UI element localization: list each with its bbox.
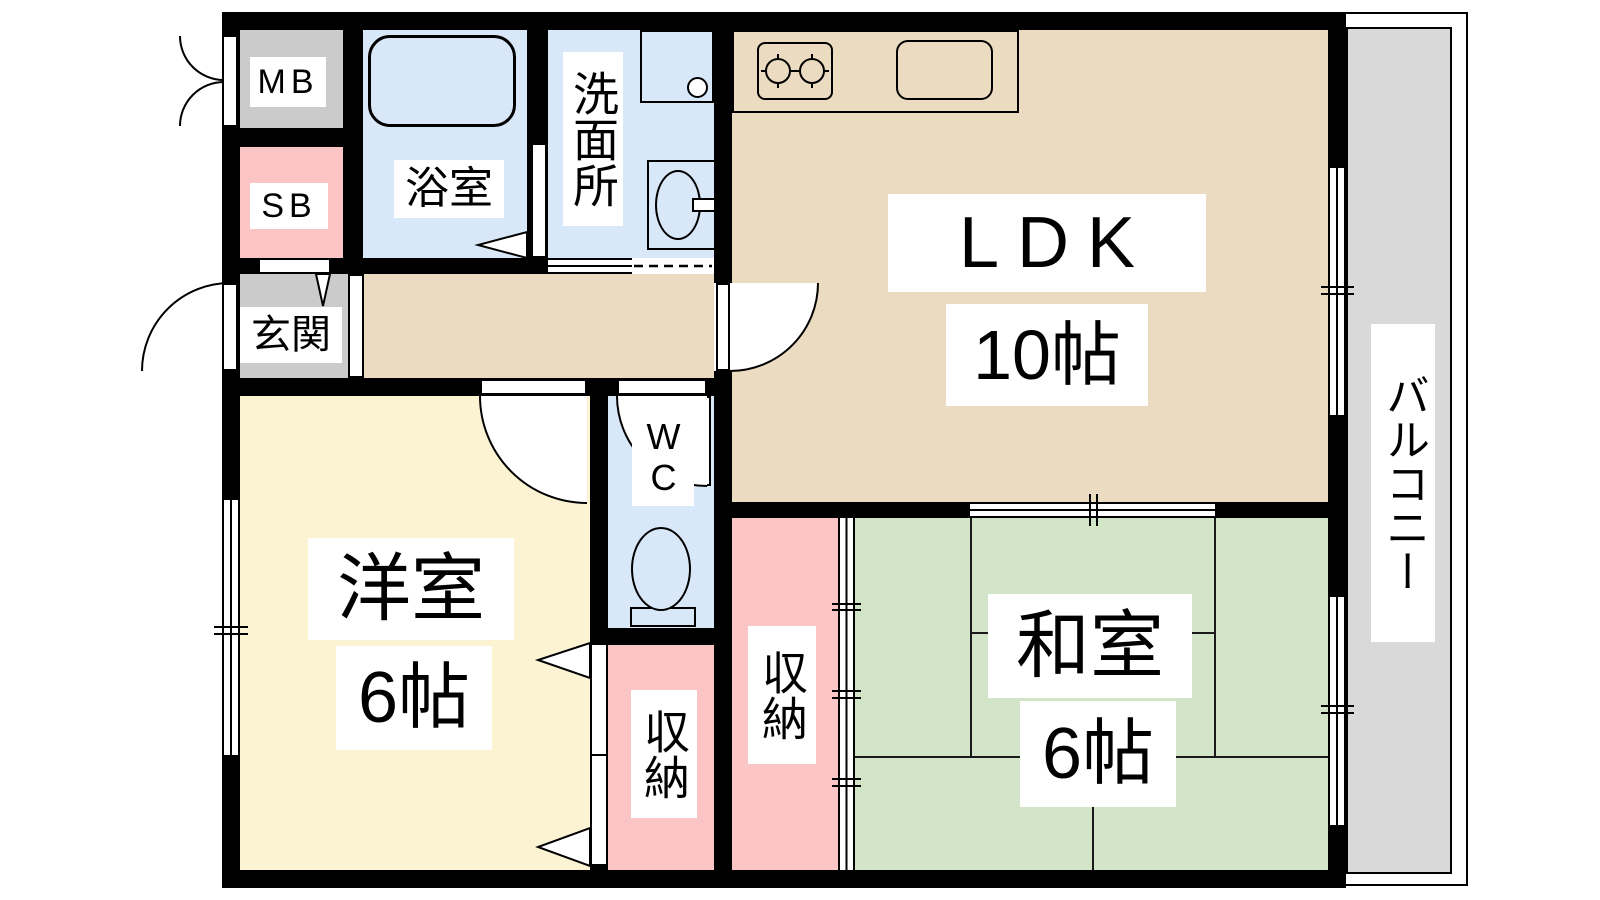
wall-mb-sb [240, 128, 343, 147]
wc-door-opening [617, 379, 707, 395]
meter-box-label: MB [250, 57, 326, 107]
wall-bottom [222, 870, 1346, 888]
youshitsu-label: 洋室 [308, 538, 514, 640]
wc-door-leaf [698, 396, 711, 486]
burner-icon [799, 58, 825, 84]
bathroom-label: 浴室 [394, 160, 504, 218]
ldk-label: LDK [888, 194, 1206, 292]
balcony-label: バルコニー [1371, 324, 1435, 642]
wall-ldk-bottom-left [732, 502, 970, 518]
floor-plan: MB SB 浴室 洗面所 玄関 LDK 10帖 WC 収納 収納 和室 6帖 洋… [0, 0, 1600, 900]
closet-washitsu-fusuma [838, 518, 855, 870]
kitchen-sink [896, 40, 993, 100]
closet-washitsu-label: 収納 [748, 626, 816, 764]
genkan-label: 玄関 [240, 307, 342, 363]
wall-center-vertical [714, 12, 732, 870]
tatami-joint [970, 518, 972, 758]
wall-wc-closet [590, 628, 732, 645]
washroom-sliding-door [548, 258, 632, 274]
washitsu-label: 和室 [988, 594, 1192, 698]
closet-folding-door [590, 643, 608, 866]
washbasin-drain [687, 77, 708, 98]
youshitsu-size-label: 6帖 [336, 646, 492, 750]
ldk-door-leaf [716, 283, 730, 371]
youshitsu-window [222, 500, 240, 755]
mb-door-arc [180, 82, 224, 126]
mb-door-arc [180, 36, 224, 80]
bathroom-door-leaf [531, 143, 547, 258]
genkan-step [348, 274, 364, 378]
washitsu-balcony-window [1328, 597, 1346, 825]
washroom-opening [632, 258, 714, 274]
youshitsu-door-leaf [480, 379, 587, 395]
washroom-label: 洗面所 [563, 52, 623, 226]
ldk-balcony-window [1328, 168, 1346, 415]
genkan-cabinet [258, 258, 331, 274]
meter-box-door-leaf [222, 35, 238, 127]
bathtub [368, 35, 516, 127]
wall-mbsb-bath [343, 12, 363, 274]
washing-machine-tap [692, 198, 716, 212]
ldk-washitsu-sliding-door [970, 502, 1215, 518]
burner-icon [765, 58, 791, 84]
hallway-floor [364, 274, 714, 380]
wall-left [222, 12, 240, 888]
closet-youshitsu-label: 収納 [631, 690, 697, 818]
ldk-size-label: 10帖 [946, 304, 1148, 406]
shoe-box-label: SB [250, 183, 328, 229]
wall-ldk-bottom-right [1215, 502, 1328, 518]
tatami-joint [1214, 518, 1216, 758]
washitsu-size-label: 6帖 [1020, 701, 1176, 807]
wc-label: WC [632, 408, 694, 506]
entrance-door-arc [142, 283, 230, 371]
entrance-door-leaf [222, 283, 238, 371]
wall-top [222, 12, 1346, 30]
toilet-bowl [631, 527, 691, 611]
